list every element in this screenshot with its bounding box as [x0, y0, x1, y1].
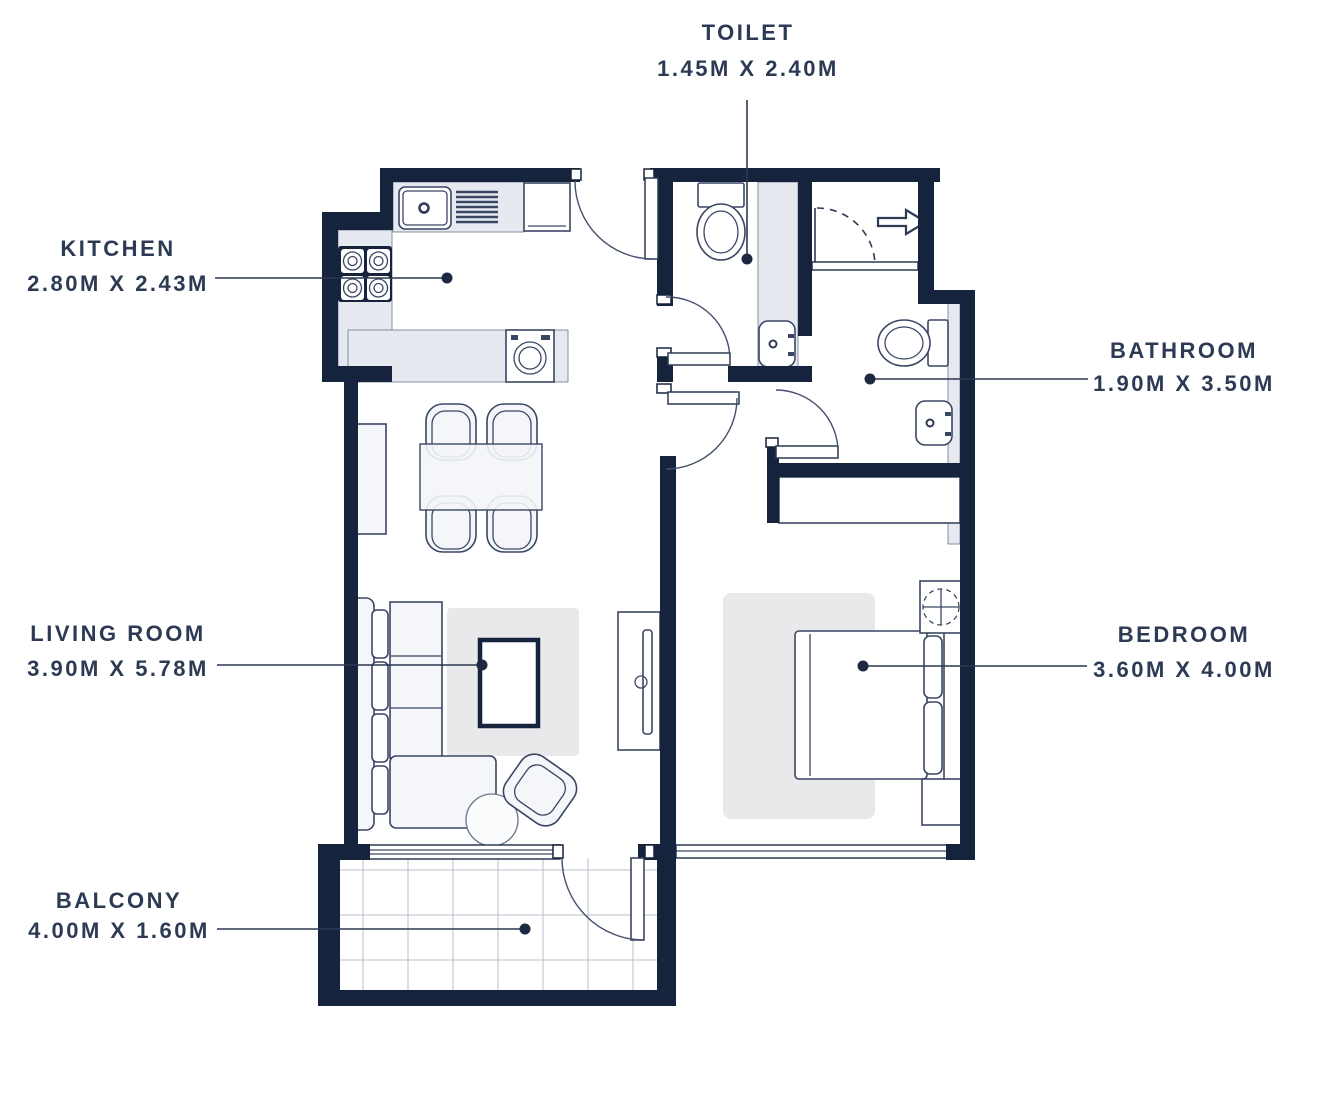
- balcony-dimensions: 4.00M X 1.60M: [28, 918, 210, 943]
- bedroom-label: BEDROOM: [1118, 622, 1250, 647]
- living-room-dimensions: 3.90M X 5.78M: [27, 656, 209, 681]
- toilet-label: TOILET: [702, 20, 795, 45]
- stove: [338, 246, 392, 302]
- nightstand-bottom: [922, 779, 962, 825]
- threshold: [812, 262, 918, 270]
- balcony-leader-dot: [520, 924, 531, 935]
- bathroom-label: BATHROOM: [1110, 338, 1258, 363]
- faucet-icon: [420, 204, 429, 213]
- balcony-tile-floor: [338, 858, 657, 990]
- kitchen-label: KITCHEN: [60, 236, 175, 261]
- balcony-label: BALCONY: [56, 888, 182, 913]
- coffee-table: [480, 640, 538, 726]
- headboard: [944, 629, 961, 781]
- drainboard: [456, 192, 498, 222]
- bathroom-leader-dot: [865, 374, 876, 385]
- tv-unit: [618, 612, 660, 750]
- toilet-dimensions: 1.45M X 2.40M: [657, 56, 839, 81]
- dining-set: [420, 404, 542, 552]
- wardrobe: [779, 477, 960, 523]
- walls: [318, 168, 975, 1006]
- toilet-room-wc: [697, 183, 745, 260]
- entry-vestibule: [812, 208, 926, 270]
- living-sliding-window: [366, 845, 560, 859]
- bathroom-dimensions: 1.90M X 3.50M: [1093, 371, 1275, 396]
- kitchen-sink: [399, 187, 451, 229]
- fridge: [524, 183, 570, 231]
- entry-door-swing: [817, 208, 875, 266]
- floor-plan-canvas: TOILET 1.45M X 2.40M KITCHEN 2.80M X 2.4…: [0, 0, 1332, 1100]
- kitchen-dimensions: 2.80M X 2.43M: [27, 271, 209, 296]
- bathroom-basin: [916, 401, 952, 445]
- dining-table: [420, 444, 542, 510]
- living-room-label: LIVING ROOM: [30, 621, 205, 646]
- hall-door: [666, 392, 739, 469]
- bed: [795, 629, 961, 781]
- kitchen-entry-door: [575, 178, 658, 259]
- living-room-leader-dot: [477, 660, 488, 671]
- bathroom-wc: [878, 320, 948, 366]
- toilet-leader-dot: [742, 254, 753, 265]
- toilet-door: [666, 297, 730, 365]
- kitchen-leader-dot: [442, 273, 453, 284]
- pillow: [924, 636, 942, 698]
- bedroom-window: [676, 845, 960, 858]
- toilet-room-basin: [759, 321, 795, 367]
- nightstand-top: [920, 581, 962, 633]
- room-labels: TOILET 1.45M X 2.40M KITCHEN 2.80M X 2.4…: [27, 20, 1275, 943]
- bedroom-dimensions: 3.60M X 4.00M: [1093, 657, 1275, 682]
- floor-plan-page: TOILET 1.45M X 2.40M KITCHEN 2.80M X 2.4…: [0, 0, 1332, 1100]
- bathroom-door: [776, 390, 838, 458]
- bedroom-leader-dot: [858, 661, 869, 672]
- washing-machine: [506, 330, 554, 382]
- pillow: [924, 702, 942, 774]
